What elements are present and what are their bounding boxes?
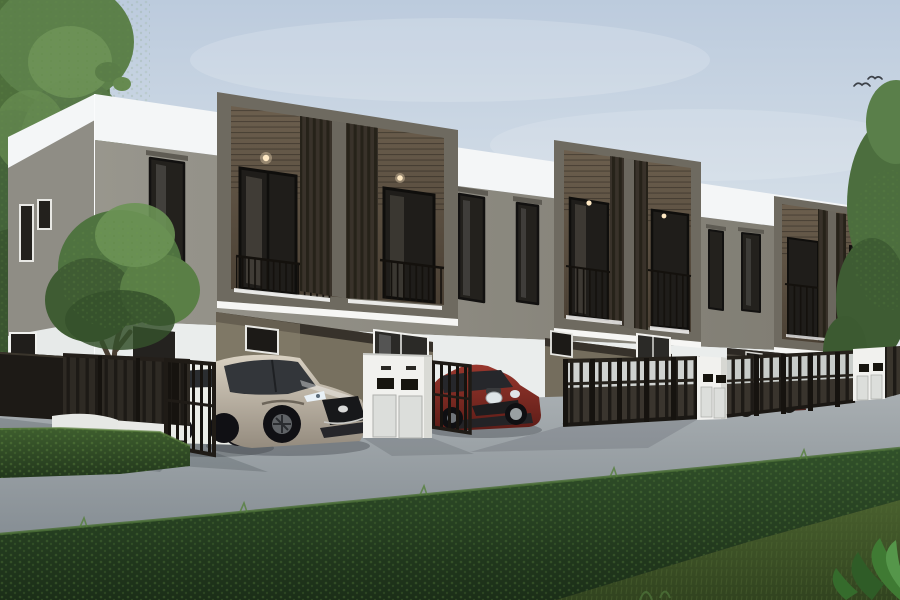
mail-slot <box>859 364 869 372</box>
wall-board <box>551 331 572 357</box>
mail-slot <box>703 374 713 382</box>
mail-slot <box>377 378 394 389</box>
cloud <box>190 18 710 102</box>
mailbox-door <box>871 375 882 399</box>
fence-left-solid <box>0 352 63 420</box>
fence-edge-right <box>885 346 900 398</box>
wall-board <box>246 326 278 354</box>
mailbox-pillar-2 <box>697 356 727 420</box>
box-mullion <box>332 121 346 298</box>
gable-window <box>20 205 33 261</box>
mail-slot <box>401 379 418 390</box>
mailbox-door <box>857 376 868 400</box>
mazda-badge <box>338 406 348 413</box>
mini-headlight <box>486 392 502 404</box>
townhouse-rendering: 3D exterior rendering: modern two-storey… <box>0 0 900 600</box>
mailbox-pillar-1 <box>363 354 432 438</box>
fence-mid <box>563 357 700 426</box>
box-mullion <box>624 158 634 330</box>
mailbox-pillar-3 <box>853 347 885 401</box>
gable-window <box>38 200 51 229</box>
mailbox-door <box>714 388 725 418</box>
rendering-canvas: 3D exterior rendering: modern two-storey… <box>0 0 900 600</box>
ceiling-light <box>586 200 591 205</box>
mail-slot <box>873 363 883 371</box>
mailbox-door <box>701 387 712 417</box>
gate-leaf-open-right <box>432 362 470 433</box>
mailbox-door <box>373 395 396 437</box>
balcony-box-1 <box>217 92 458 326</box>
ceiling-light <box>662 214 667 219</box>
mail-slot <box>716 375 726 383</box>
balcony-box-2 <box>554 140 701 348</box>
balcony-railing <box>648 270 691 331</box>
mailbox-door <box>399 396 422 438</box>
mini-headlight <box>510 390 520 398</box>
